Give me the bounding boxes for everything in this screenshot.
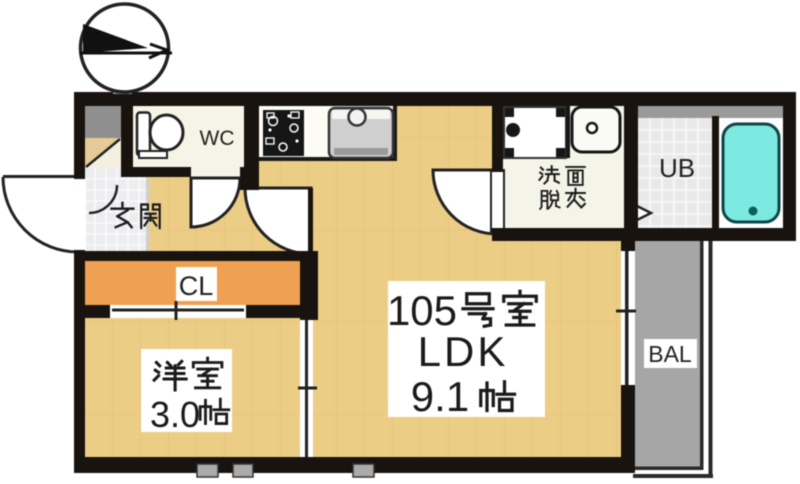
svg-text:105: 105: [387, 287, 457, 334]
svg-text:3.0: 3.0: [150, 394, 200, 435]
svg-text:LDK: LDK: [418, 328, 509, 375]
svg-text:WC: WC: [200, 127, 235, 150]
svg-text:BAL: BAL: [648, 341, 692, 367]
svg-text:9.1: 9.1: [411, 373, 469, 420]
svg-text:UB: UB: [659, 153, 695, 183]
svg-text:CL: CL: [179, 271, 214, 301]
